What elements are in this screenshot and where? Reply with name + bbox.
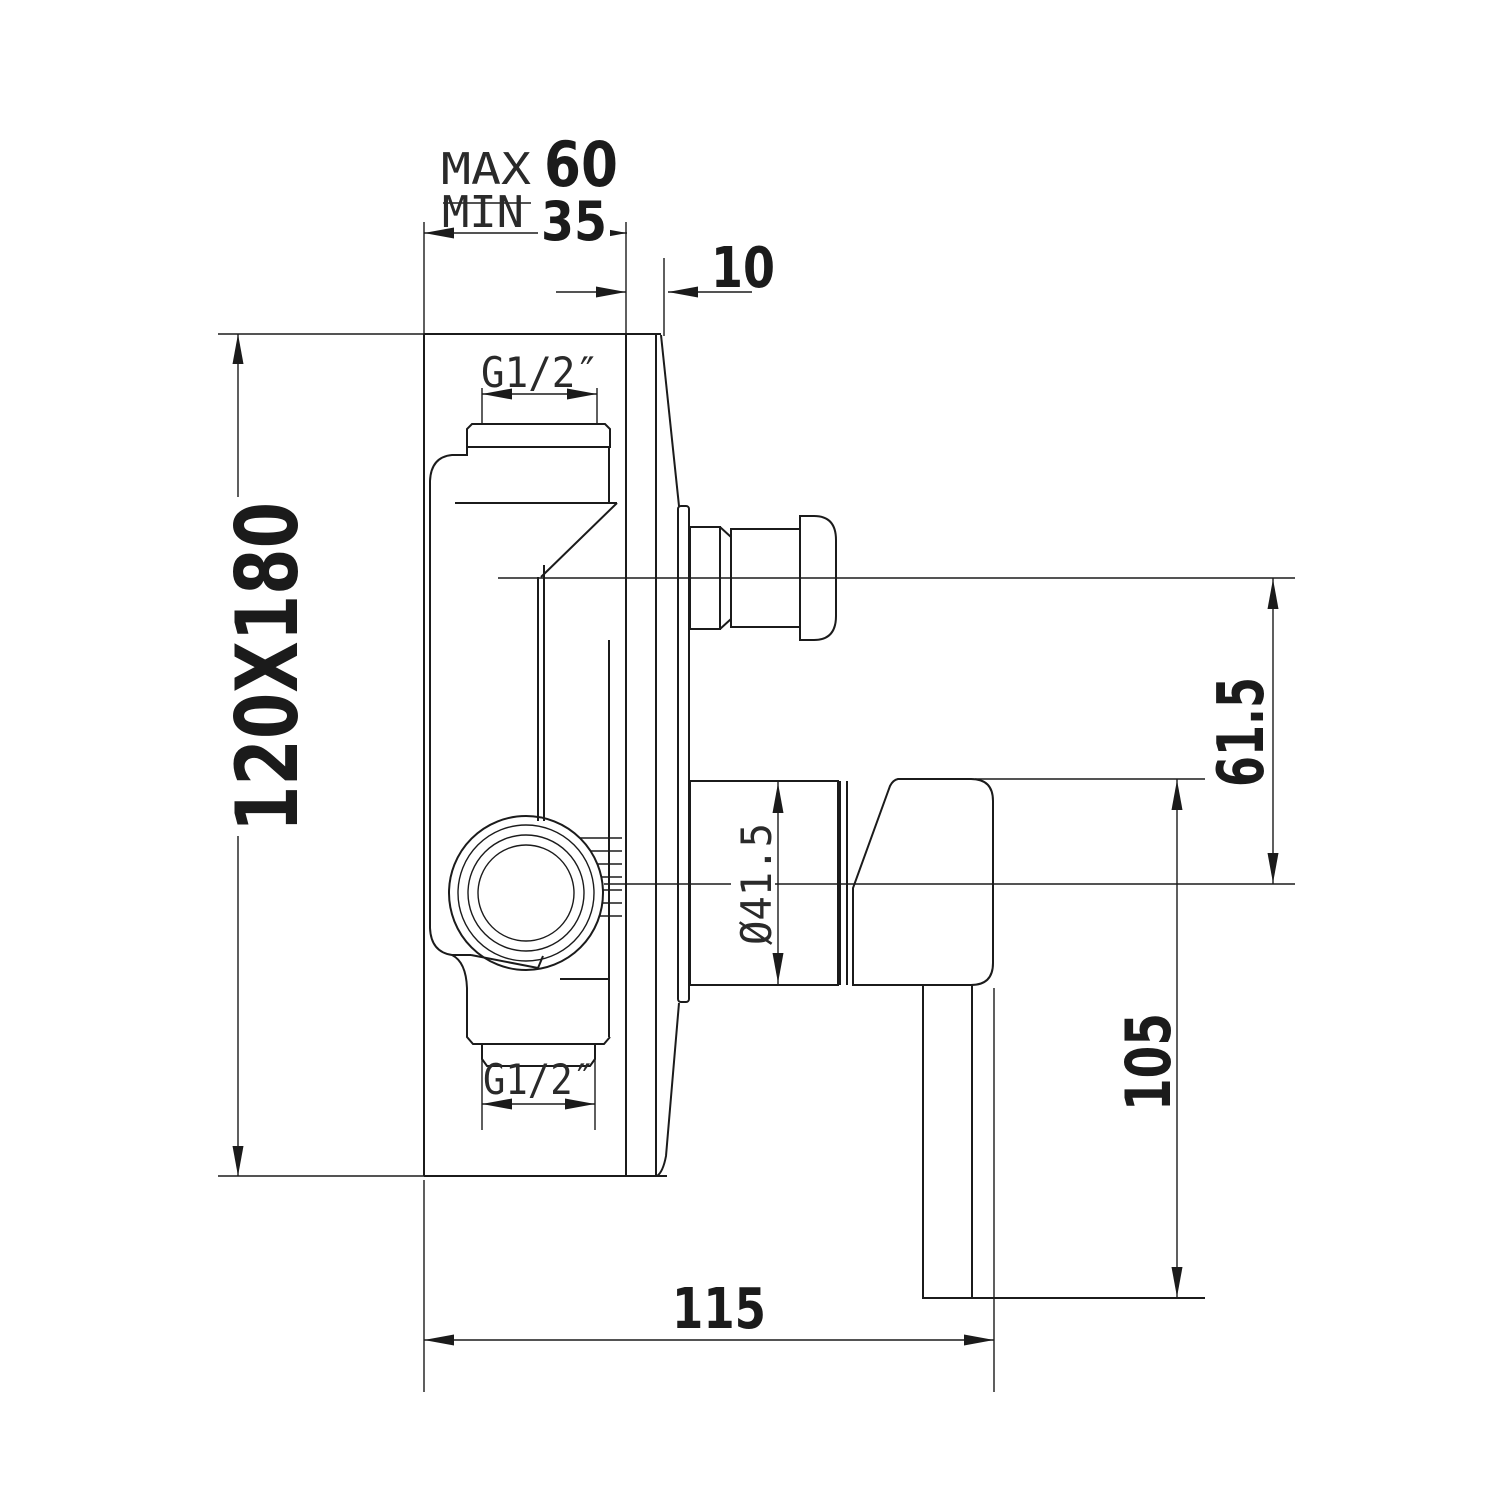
arrow-right-icon <box>964 1335 994 1346</box>
trim-plate-profile <box>424 334 689 1176</box>
arrow-down-icon <box>1172 1267 1183 1297</box>
dimension-lines <box>218 203 1295 1392</box>
dim-min-value: 35 <box>541 190 607 253</box>
front-boss-strip <box>678 506 689 1002</box>
port-circle-outer <box>449 816 603 970</box>
dim-plate-size: 120X180 <box>218 502 318 832</box>
arrow-up-icon <box>1172 780 1183 810</box>
plate-front-bevel-bottom <box>657 1003 679 1176</box>
dim-handle-reach: 115 <box>672 1277 766 1342</box>
plate-front-bevel-top <box>661 335 679 506</box>
arrow-up-icon <box>1268 579 1279 609</box>
body-section-diagonal-top <box>541 503 617 577</box>
dim-handle-drop: 105 <box>1112 1013 1185 1111</box>
mixer-valve-diagram: MAX 60 MIN 35 10 120X180 G1/2″ Ø41.5 61.… <box>0 0 1500 1500</box>
dim-min-label: MIN <box>442 187 524 238</box>
dim-thread-bottom: G1/2″ <box>483 1055 595 1104</box>
arrow-down-icon <box>1268 853 1279 883</box>
arrow-down-icon <box>773 953 784 983</box>
arrow-right-icon <box>596 287 626 298</box>
dimension-texts: MAX 60 MIN 35 10 120X180 G1/2″ Ø41.5 61.… <box>218 128 1279 1342</box>
dimension-arrows <box>233 228 1279 1346</box>
cartridge-port-circles <box>449 816 603 970</box>
knob-taper-top <box>720 527 731 537</box>
arrow-up-icon <box>773 783 784 813</box>
dim-trim-diameter: Ø41.5 <box>732 823 781 945</box>
valve-body <box>430 424 622 1066</box>
arrow-down-icon <box>233 1146 244 1176</box>
port-circle-bore <box>478 845 574 941</box>
dim-outlet-offset: 61.5 <box>1205 677 1279 787</box>
knob-taper-bottom <box>720 619 731 629</box>
arrow-left-icon <box>424 1335 454 1346</box>
top-inlet-stub <box>467 424 610 447</box>
port-circle-ring3 <box>468 835 584 951</box>
dim-thread-top: G1/2″ <box>481 348 599 397</box>
arrow-up-icon <box>233 334 244 364</box>
thread-lines <box>580 838 622 916</box>
body-bottom-block <box>452 955 610 1044</box>
handle-hub <box>853 779 993 985</box>
arrow-left-icon <box>668 287 698 298</box>
technical-drawing-page: MAX 60 MIN 35 10 120X180 G1/2″ Ø41.5 61.… <box>0 0 1500 1500</box>
dim-plaster-depth: 10 <box>711 236 775 301</box>
